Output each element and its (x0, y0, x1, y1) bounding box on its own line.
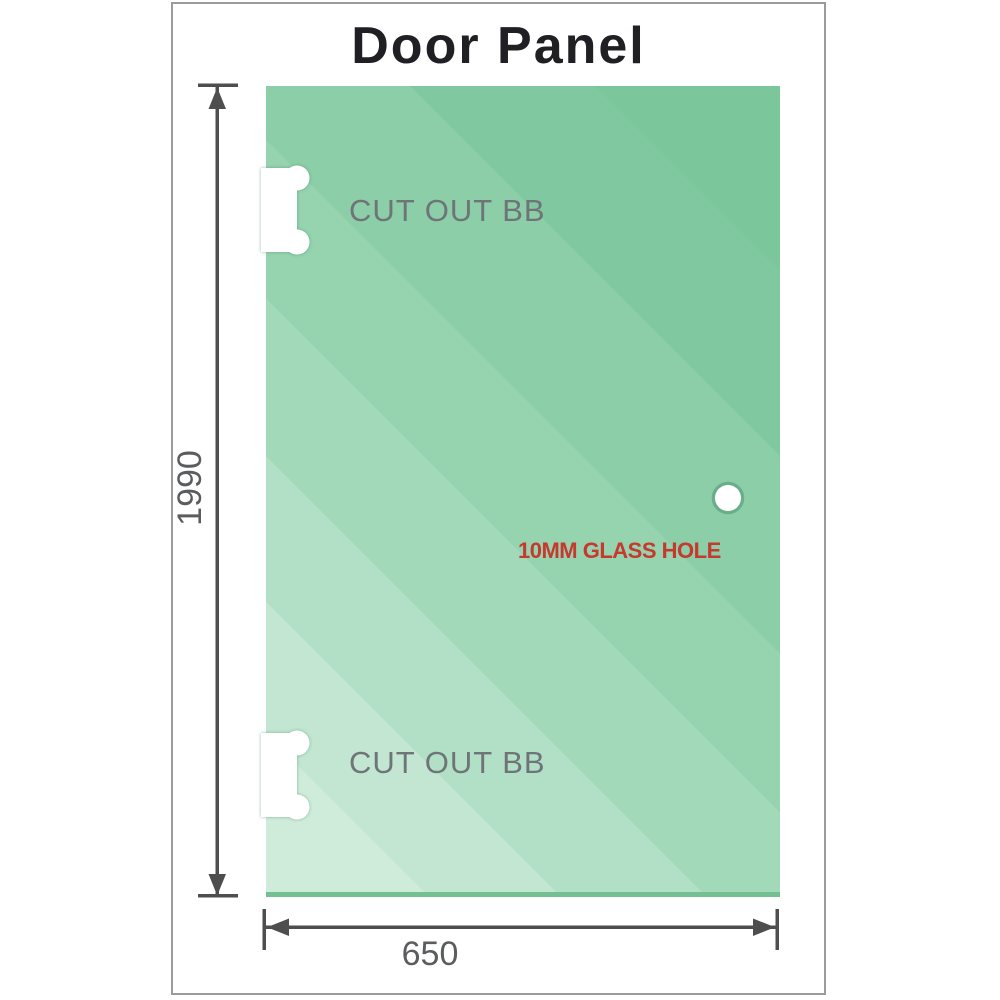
height-dimension-label: 1990 (170, 428, 210, 548)
diagram-title: Door Panel (171, 18, 826, 74)
cutout-label-top: CUT OUT BB (349, 194, 546, 228)
glass-hole-label: 10MM GLASS HOLE (518, 539, 721, 563)
door-panel-diagram: Door Panel (0, 0, 1000, 1000)
cutout-label-bottom: CUT OUT BB (349, 746, 546, 780)
width-dimension-label: 650 (380, 936, 480, 972)
